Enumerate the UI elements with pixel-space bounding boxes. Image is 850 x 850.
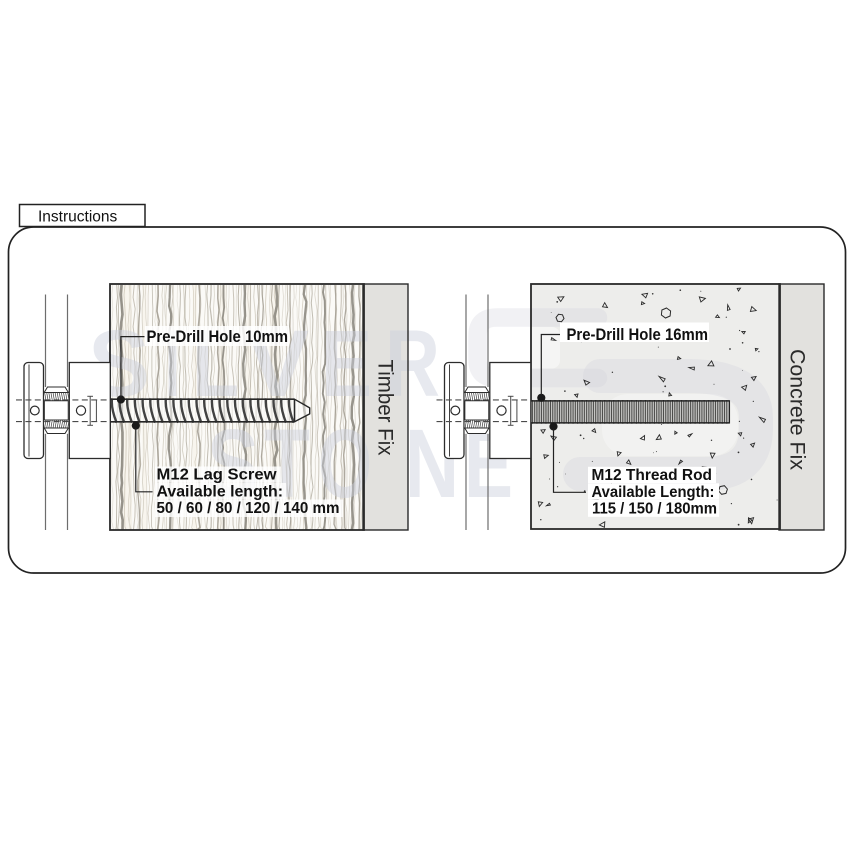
svg-text:Pre-Drill Hole 10mm: Pre-Drill Hole 10mm (147, 327, 289, 346)
svg-text:Timber Fix: Timber Fix (374, 360, 397, 456)
svg-text:M12 Lag Screw: M12 Lag Screw (157, 467, 278, 484)
svg-text:Instructions: Instructions (38, 209, 118, 226)
svg-text:115 / 150 / 180mm: 115 / 150 / 180mm (592, 501, 717, 518)
svg-text:Pre-Drill Hole 16mm: Pre-Drill Hole 16mm (567, 325, 709, 344)
svg-text:M12 Thread Rod: M12 Thread Rod (592, 467, 713, 484)
svg-text:Available Length:: Available Length: (592, 484, 715, 501)
svg-text:50 / 60 / 80 / 120 / 140 mm: 50 / 60 / 80 / 120 / 140 mm (157, 500, 340, 517)
svg-text:Available length:: Available length: (157, 483, 284, 500)
svg-text:Concrete Fix: Concrete Fix (786, 349, 809, 470)
